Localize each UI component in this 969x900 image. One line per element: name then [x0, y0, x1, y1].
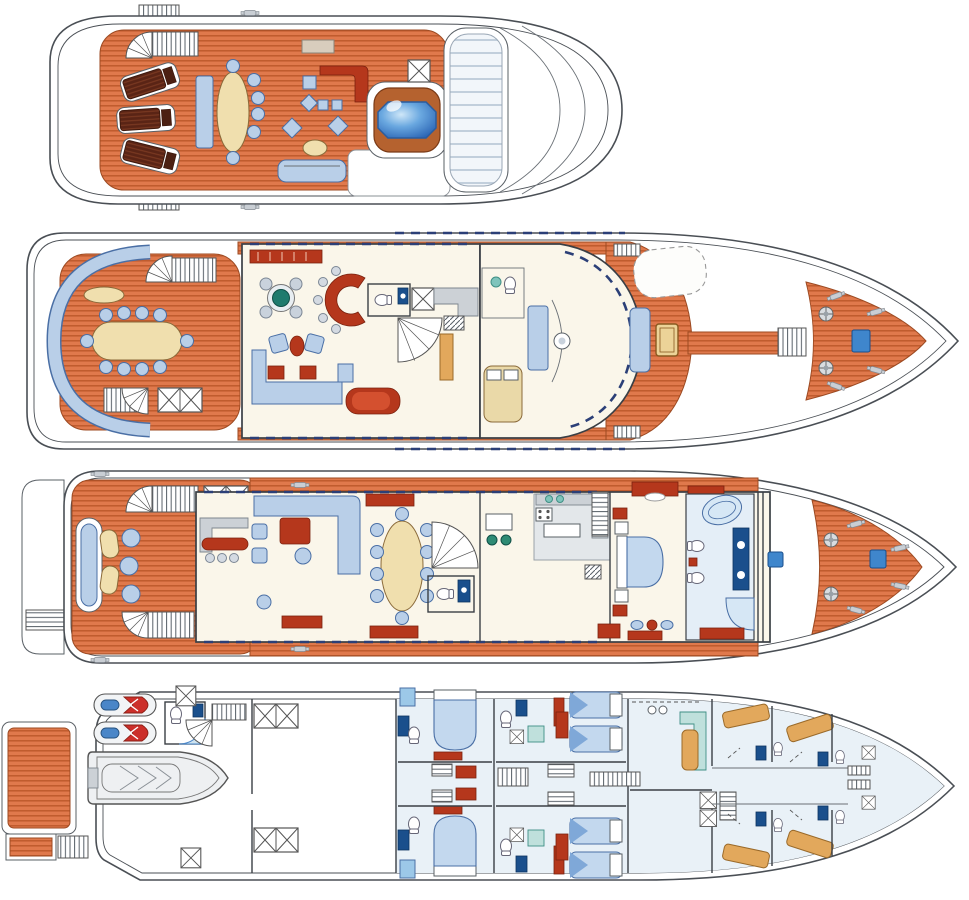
- cabinet: [598, 624, 620, 638]
- engine-room-hatch: [254, 828, 298, 852]
- sink: [557, 496, 564, 503]
- pillow: [610, 854, 622, 876]
- armchair: [252, 548, 267, 563]
- stairs: [212, 704, 246, 720]
- pillow: [610, 820, 622, 842]
- coffee-table: [280, 518, 310, 544]
- toilet: [171, 707, 182, 724]
- hatch: [862, 796, 875, 809]
- upper-deck: [27, 233, 958, 449]
- skylight: [400, 688, 415, 706]
- dining-chair: [81, 335, 94, 348]
- stairs-down: [585, 565, 601, 579]
- forepeak-ladder: [848, 780, 870, 789]
- corridor-stairs: [590, 772, 640, 786]
- engine-room-hatch: [254, 704, 298, 728]
- ottoman: [290, 336, 304, 356]
- pouf: [661, 621, 673, 630]
- sideboard: [84, 287, 124, 303]
- stool: [647, 620, 657, 630]
- basin: [659, 706, 667, 714]
- hatch: [510, 730, 524, 744]
- dining-chair: [181, 335, 194, 348]
- nightstand: [615, 590, 628, 602]
- toilet: [774, 818, 783, 831]
- side-deck-teak: [250, 478, 758, 492]
- dining-chair: [154, 309, 167, 322]
- stairs: [548, 764, 574, 777]
- deck-hatch: [158, 388, 202, 412]
- basin: [648, 706, 656, 714]
- windlass: [819, 361, 833, 375]
- windlass: [824, 533, 838, 547]
- pouf: [631, 621, 643, 630]
- bench: [282, 616, 322, 628]
- side-table: [257, 595, 271, 609]
- dining-chair: [118, 363, 131, 376]
- lower-deck: [2, 686, 954, 880]
- armchair: [304, 333, 325, 354]
- wardrobe: [613, 508, 627, 519]
- cleat: [91, 658, 109, 663]
- jet-ski: [94, 694, 156, 716]
- chaise-cushion: [352, 392, 390, 410]
- sink: [818, 806, 828, 820]
- forepeak-ladder: [848, 766, 870, 775]
- sun-deck: [50, 5, 622, 210]
- stairs-down: [444, 316, 464, 330]
- double-bed: [434, 816, 476, 866]
- toilet: [375, 295, 392, 306]
- toilet: [836, 810, 845, 823]
- sink: [398, 830, 409, 850]
- dining-chair: [118, 307, 131, 320]
- dining-chair: [136, 307, 149, 320]
- sink: [756, 746, 766, 760]
- pillows: [434, 690, 476, 700]
- dining-chair: [100, 361, 113, 374]
- side-table: [295, 548, 311, 564]
- lounge-cushion: [318, 100, 328, 110]
- pillow: [610, 728, 622, 750]
- dinette-chair: [487, 535, 497, 545]
- wardrobe: [613, 605, 627, 616]
- basin: [400, 293, 405, 298]
- toilet: [774, 742, 783, 755]
- master-bed: [627, 537, 663, 587]
- dining-chair: [248, 126, 261, 139]
- side-door: [614, 426, 640, 438]
- stairs: [432, 764, 452, 776]
- dinette-table: [486, 514, 512, 530]
- stairs: [148, 612, 194, 638]
- sideboard-bar-back: [250, 250, 322, 263]
- pillow: [610, 694, 622, 716]
- hatch: [412, 288, 434, 310]
- bench: [434, 752, 462, 760]
- shower: [528, 830, 544, 846]
- anchor-hatch: [852, 330, 870, 352]
- bar-counter: [202, 538, 248, 550]
- side-table: [300, 366, 316, 379]
- spa-pool: [367, 82, 447, 158]
- cabinet: [700, 628, 744, 639]
- toilet: [688, 541, 705, 552]
- sink: [516, 700, 527, 716]
- sink: [516, 856, 527, 872]
- dining-chair: [252, 108, 265, 121]
- cleat: [291, 483, 309, 488]
- sink: [818, 752, 828, 766]
- sink: [756, 812, 766, 826]
- main-deck: [22, 471, 956, 663]
- hatch: [510, 828, 524, 842]
- lounge-cushion: [332, 100, 342, 110]
- ottoman: [303, 140, 327, 156]
- hatch: [862, 746, 875, 759]
- dining-chair: [136, 363, 149, 376]
- sink: [398, 716, 409, 736]
- sideboard: [196, 76, 213, 148]
- platform-step: [10, 838, 52, 856]
- dining-chair: [100, 309, 113, 322]
- island: [544, 524, 580, 537]
- stairs: [548, 792, 574, 805]
- windlass: [824, 587, 838, 601]
- dining-chair: [227, 60, 240, 73]
- pillows: [434, 866, 476, 876]
- dining-chair: [252, 92, 265, 105]
- hatch: [700, 810, 717, 827]
- headboard: [617, 536, 627, 588]
- formal-dining-table: [381, 521, 423, 611]
- master-bathroom: [686, 491, 754, 640]
- vanity-desk: [628, 631, 662, 640]
- toilet: [688, 573, 705, 584]
- stairs: [432, 790, 452, 802]
- rib-tender: [88, 752, 228, 804]
- stove: [536, 508, 552, 521]
- deck-hatch: [176, 686, 196, 706]
- platform-ladder: [26, 610, 64, 630]
- deck-hatch: [181, 848, 201, 868]
- jet-ski: [94, 722, 156, 744]
- bow-walkway-teak: [688, 332, 780, 354]
- side-deck-teak: [250, 642, 758, 656]
- nightstand: [615, 522, 628, 534]
- toilet: [409, 817, 420, 834]
- shower: [528, 726, 544, 742]
- dining-chair: [248, 74, 261, 87]
- sink: [546, 496, 553, 503]
- nightstand: [556, 712, 568, 738]
- stairs: [172, 258, 216, 282]
- sofa: [278, 160, 346, 182]
- double-vanity: [733, 528, 749, 590]
- toilet: [437, 589, 454, 600]
- toilet: [501, 711, 512, 728]
- windlass: [819, 307, 833, 321]
- hatch: [700, 792, 717, 809]
- cleat: [241, 205, 259, 210]
- grill-cabinet: [302, 40, 334, 53]
- deck-plan-canvas: [0, 0, 969, 900]
- armchair: [268, 333, 289, 354]
- anchor-chain-plate: [778, 328, 806, 356]
- dining-table: [217, 72, 249, 152]
- armchair: [252, 524, 267, 539]
- credenza: [366, 494, 414, 506]
- landing-cabinet: [456, 766, 476, 778]
- landing-cabinet: [456, 788, 476, 800]
- nightstand: [556, 834, 568, 860]
- swim-platform-teak: [8, 728, 70, 828]
- mess-table: [682, 730, 698, 770]
- lounge-cushion: [303, 76, 316, 89]
- lobby-stairs: [498, 768, 528, 786]
- deck-hatch: [768, 552, 783, 567]
- stairs-down: [592, 492, 608, 536]
- toilet: [836, 750, 845, 763]
- side-table: [268, 366, 284, 379]
- stairs: [720, 792, 736, 820]
- al-fresco-dining-table: [92, 322, 182, 360]
- credenza: [370, 626, 418, 638]
- cleat: [241, 11, 259, 16]
- double-bed: [434, 700, 476, 750]
- side-table: [338, 364, 353, 382]
- basin: [461, 587, 467, 593]
- cleat: [91, 472, 109, 477]
- outboard-engine: [88, 768, 98, 788]
- skylight: [656, 324, 678, 356]
- observation-settee: [630, 308, 650, 372]
- deck-hatch: [408, 60, 430, 82]
- cleat: [291, 647, 309, 652]
- boarding-ladder: [58, 836, 88, 858]
- dining-chair: [154, 361, 167, 374]
- yacht-deck-plans: [0, 0, 969, 900]
- locker: [440, 334, 453, 380]
- stairs: [152, 32, 198, 56]
- bench: [434, 806, 462, 814]
- anchor-hatch: [870, 550, 886, 568]
- toilet: [409, 727, 420, 744]
- skylight: [400, 860, 415, 878]
- forward-sun-pad-panel: [450, 34, 502, 186]
- stairs: [152, 486, 198, 512]
- sun-lounger: [116, 104, 176, 134]
- dinette-chair: [501, 535, 511, 545]
- dining-chair: [227, 152, 240, 165]
- side-door: [614, 244, 640, 256]
